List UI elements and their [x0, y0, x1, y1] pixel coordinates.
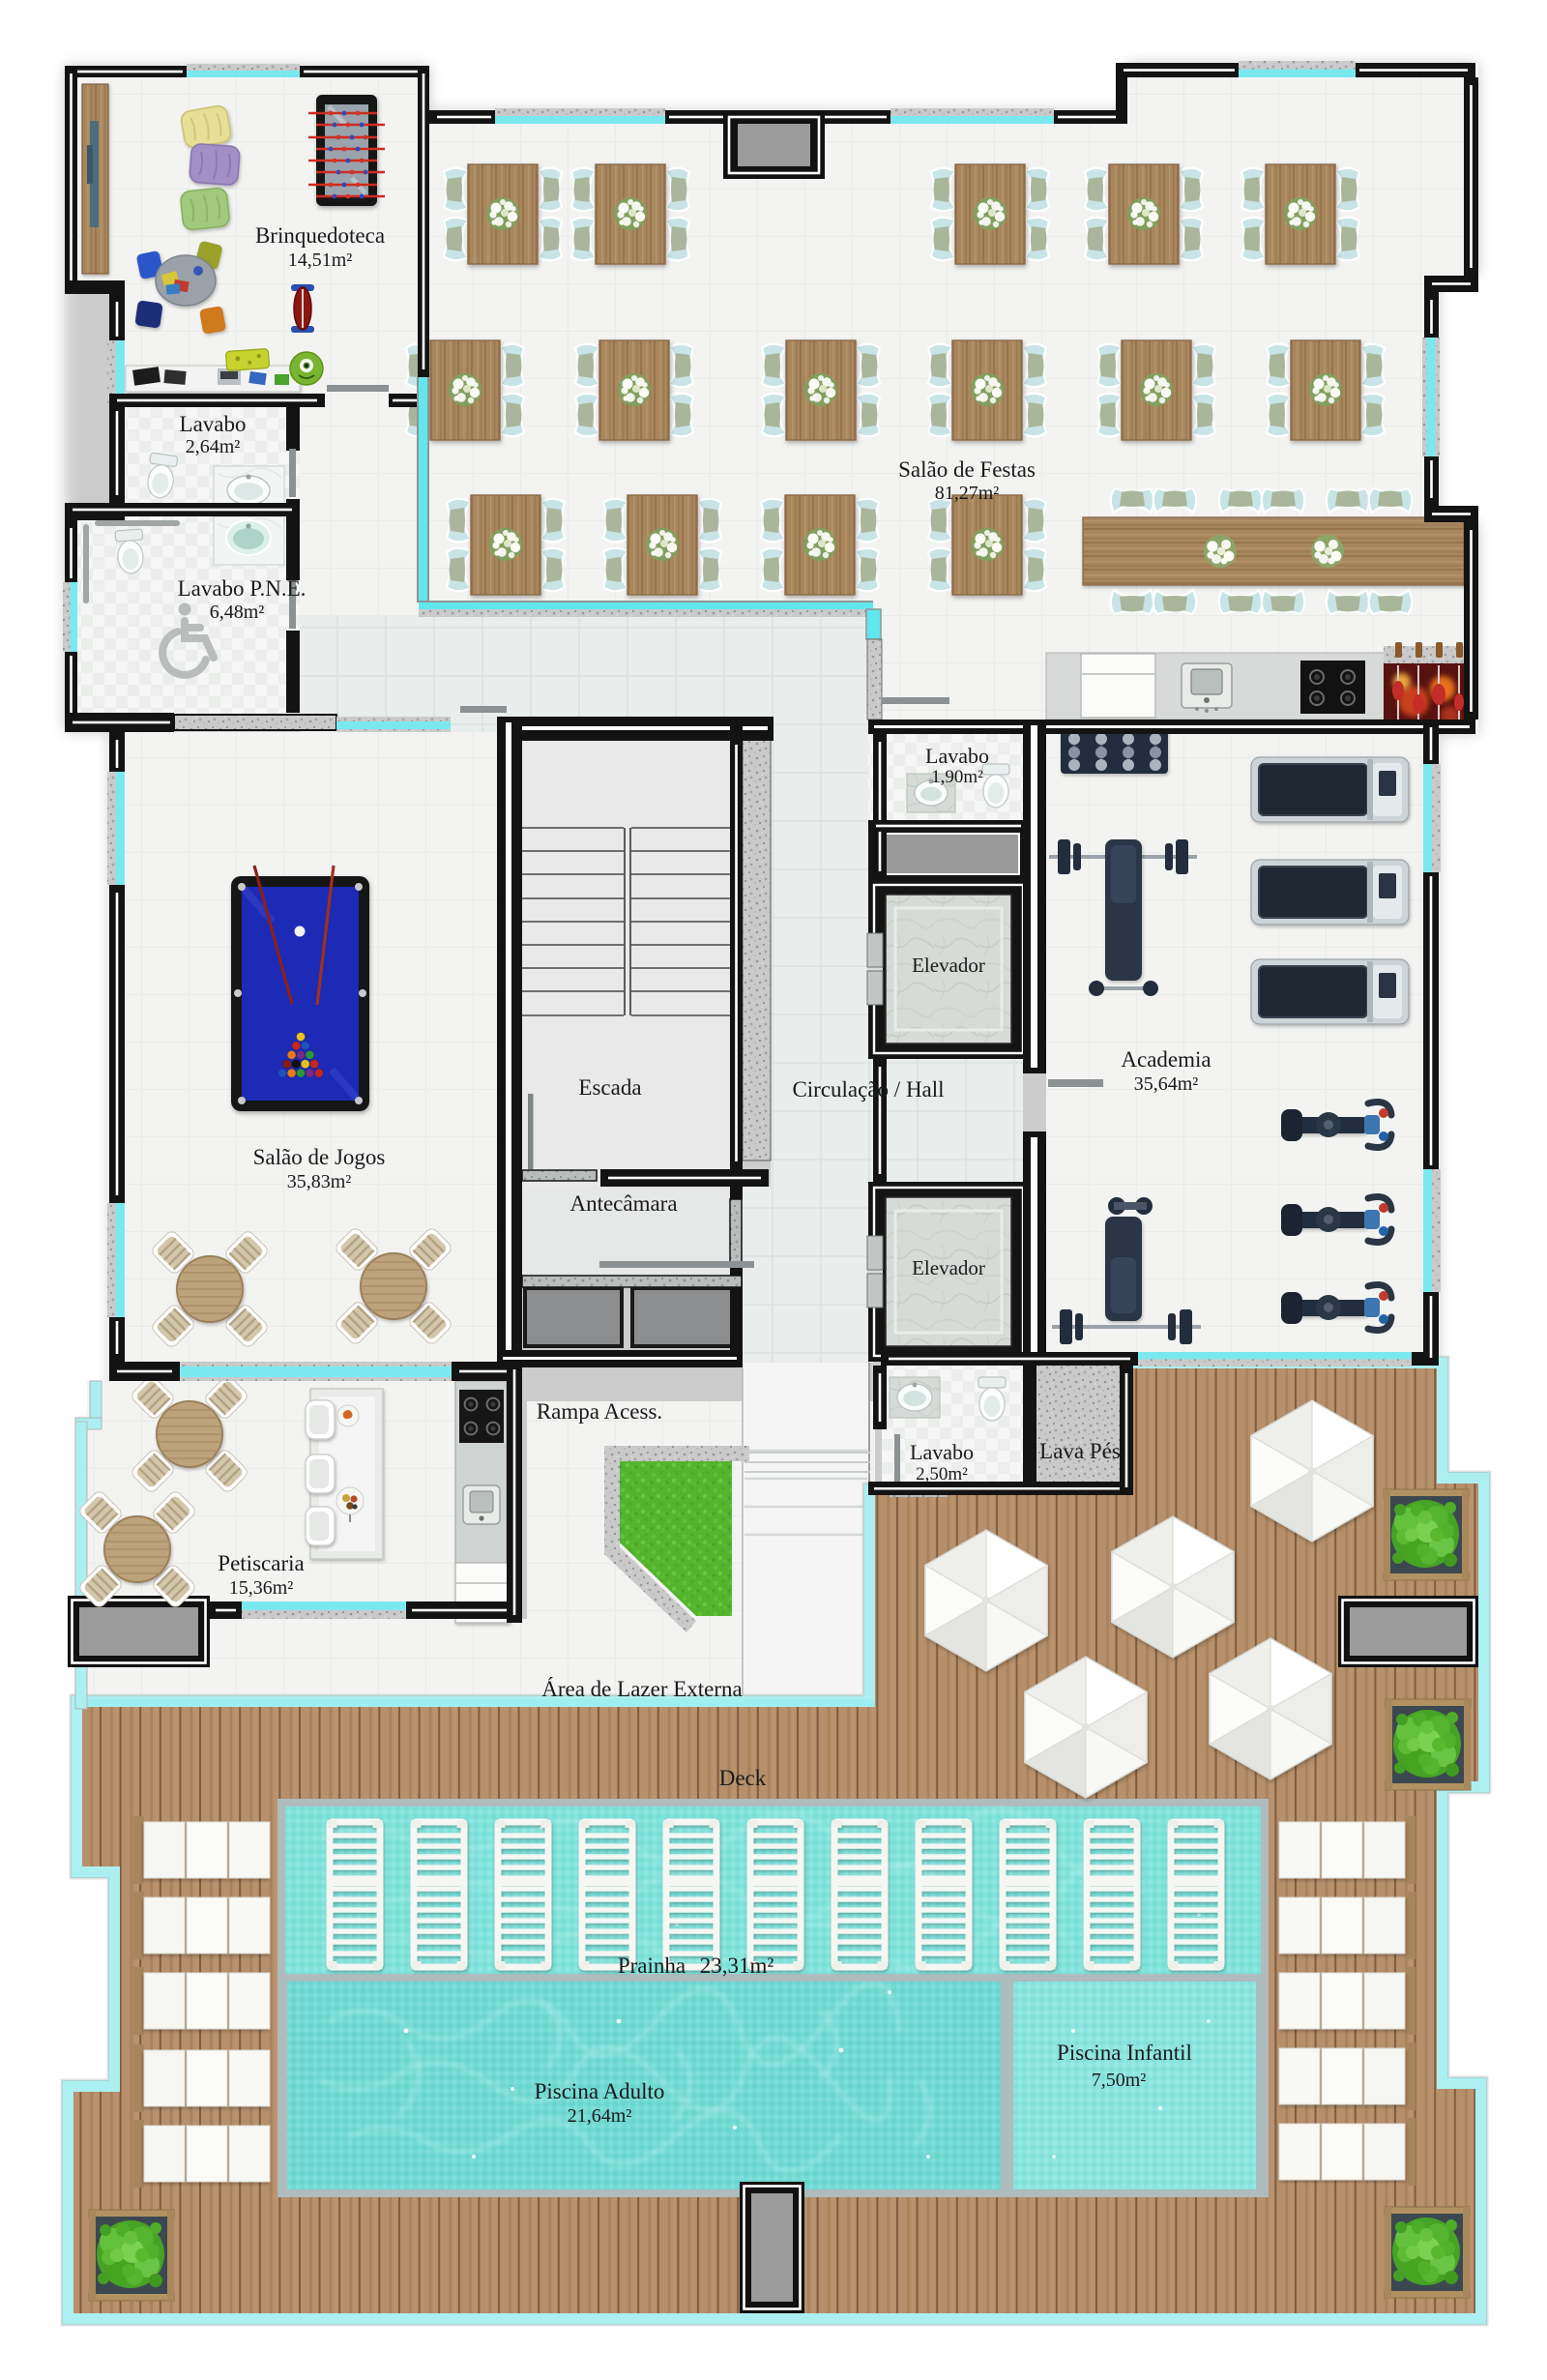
svg-text:Salão de Festas: Salão de Festas: [898, 457, 1036, 482]
svg-text:Lavabo: Lavabo: [180, 412, 247, 436]
svg-text:Escada: Escada: [578, 1075, 641, 1100]
svg-text:7,50m²: 7,50m²: [1092, 2070, 1147, 2091]
svg-text:15,36m²: 15,36m²: [229, 1577, 294, 1599]
svg-text:Circulação / Hall: Circulação / Hall: [792, 1077, 944, 1102]
svg-text:Salão de Jogos: Salão de Jogos: [253, 1145, 386, 1169]
svg-text:Piscina Infantil: Piscina Infantil: [1057, 2041, 1192, 2065]
svg-text:14,51m²: 14,51m²: [288, 250, 353, 271]
svg-text:Elevador: Elevador: [912, 954, 985, 977]
svg-text:2,50m²: 2,50m²: [916, 1464, 968, 1484]
svg-text:Lavabo: Lavabo: [925, 744, 989, 768]
svg-text:35,83m²: 35,83m²: [287, 1171, 352, 1192]
svg-text:Piscina Adulto: Piscina Adulto: [535, 2079, 665, 2103]
svg-text:Petiscaria: Petiscaria: [218, 1551, 304, 1575]
svg-text:23,31m²: 23,31m²: [700, 1954, 774, 1978]
svg-text:Antecâmara: Antecâmara: [569, 1191, 677, 1216]
svg-text:2,64m²: 2,64m²: [186, 436, 241, 457]
svg-text:1,90m²: 1,90m²: [931, 767, 983, 787]
svg-text:81,27m²: 81,27m²: [935, 483, 1000, 504]
svg-text:Brinquedoteca: Brinquedoteca: [255, 223, 385, 248]
svg-text:35,64m²: 35,64m²: [1134, 1073, 1199, 1095]
svg-text:Lavabo: Lavabo: [910, 1440, 974, 1464]
svg-text:Elevador: Elevador: [912, 1256, 985, 1279]
svg-text:Prainha: Prainha: [618, 1954, 686, 1978]
svg-text:6,48m²: 6,48m²: [210, 602, 265, 623]
svg-text:Academia: Academia: [1121, 1047, 1211, 1072]
svg-text:Lava Pés: Lava Pés: [1039, 1439, 1121, 1463]
svg-text:Área de Lazer Externa: Área de Lazer Externa: [541, 1677, 743, 1701]
svg-text:Deck: Deck: [719, 1766, 767, 1790]
svg-text:Rampa Acess.: Rampa Acess.: [537, 1399, 662, 1424]
svg-text:Lavabo P.N.E.: Lavabo P.N.E.: [178, 576, 306, 601]
svg-text:21,64m²: 21,64m²: [568, 2105, 632, 2127]
